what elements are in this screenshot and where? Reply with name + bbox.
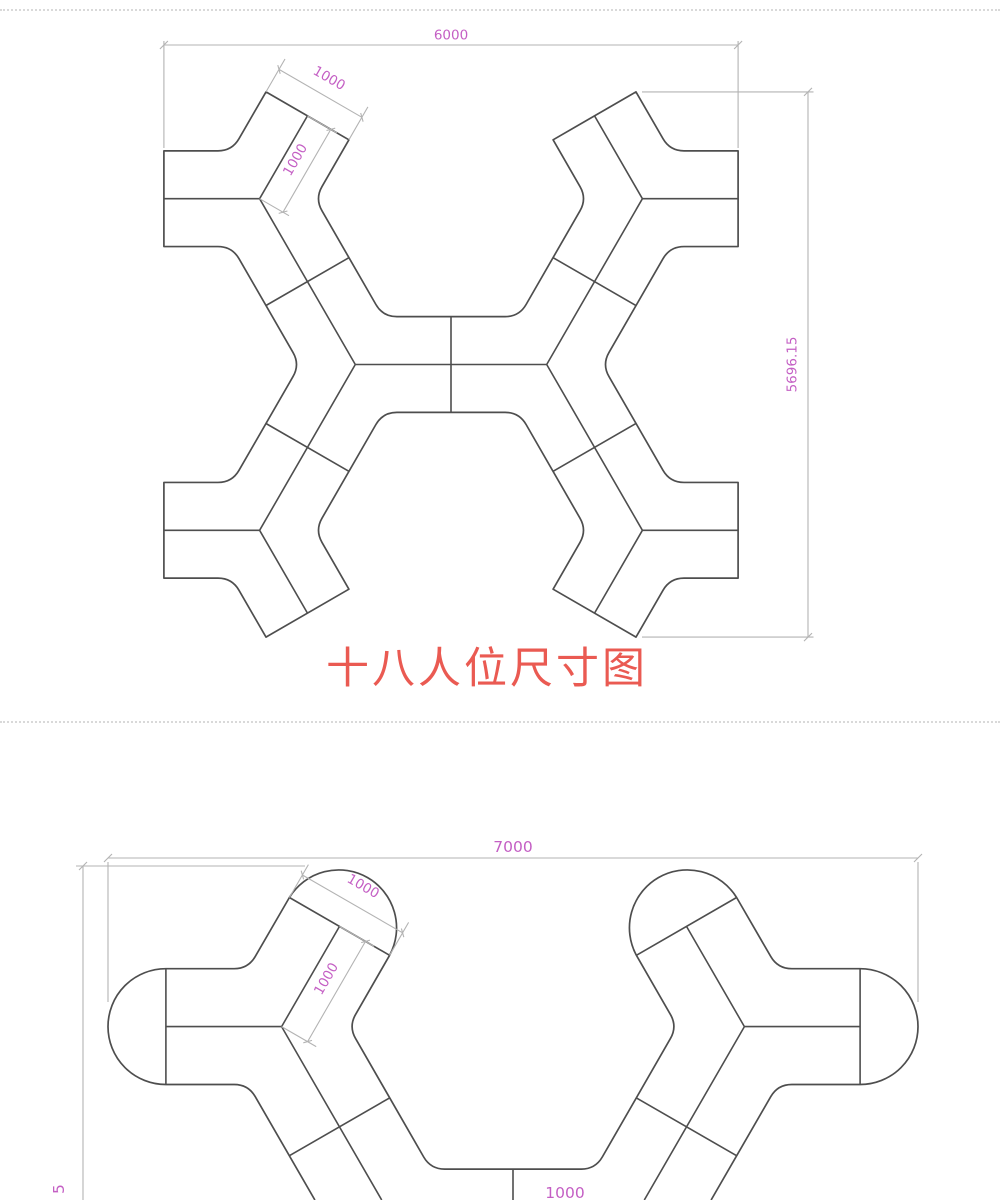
- bottom-cluster-desk-dividers: [166, 898, 860, 1200]
- top-dimension-height: 5696.15: [642, 88, 814, 641]
- dim-label-desk-depth-bottom: 1000: [311, 960, 342, 998]
- dim-label-bottom-height-partial: 5: [50, 1184, 68, 1194]
- dimension-line: [160, 41, 742, 148]
- dim-label-top-width: 6000: [434, 28, 468, 44]
- dim-label-center-bottom: 1000: [545, 1184, 584, 1200]
- cad-drawing-canvas: 6000 5696.15 1000 1000 7000 5 1000 1000 …: [0, 0, 1000, 1200]
- bottom-cluster-outline: [108, 870, 918, 1200]
- bottom-dimension-desk-depth: 1000: [282, 926, 375, 1046]
- dim-label-bottom-width: 7000: [493, 838, 532, 856]
- diagram-title: 十八人位尺寸图: [326, 644, 648, 696]
- top-desk-cluster: [164, 92, 738, 637]
- dim-label-top-height: 5696.15: [785, 337, 801, 393]
- top-dimension-desk-edge: 1000: [266, 59, 368, 140]
- dimension-line: [104, 854, 922, 1002]
- bottom-dimension-center: 1000: [545, 1184, 584, 1200]
- dim-label-desk-depth-top: 1000: [280, 141, 311, 179]
- bottom-desk-cluster: [108, 870, 918, 1200]
- dimension-line: [76, 862, 305, 1200]
- bottom-dimension-width: 7000: [104, 838, 922, 1002]
- bottom-dimension-height-partial: 5: [50, 862, 305, 1200]
- bottom-dimension-desk-edge: 1000: [289, 865, 408, 956]
- top-dimension-width: 6000: [160, 28, 742, 149]
- top-cluster-desk-dividers: [164, 116, 738, 613]
- dim-label-desk-edge-top: 1000: [310, 63, 348, 94]
